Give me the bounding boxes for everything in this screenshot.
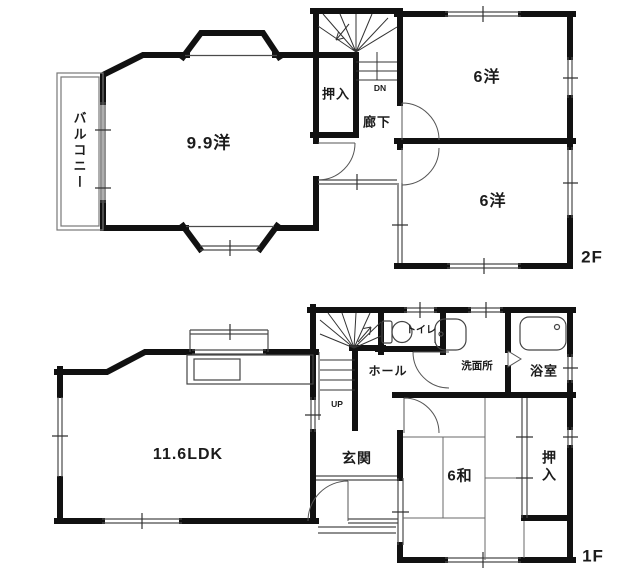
bathtub-icon — [520, 317, 566, 350]
label-washroom: 洗面所 — [461, 361, 493, 372]
label-stairs-dn: DN — [374, 84, 386, 93]
label-floor-1f: 1F — [582, 548, 604, 565]
label-entrance: 玄関 — [342, 451, 372, 465]
label-floor-2f: 2F — [581, 249, 603, 266]
floor-2f-plan — [57, 6, 578, 274]
walls-1f — [57, 307, 573, 560]
doors-1f — [308, 351, 521, 521]
bath-folding-door-icon — [508, 351, 521, 367]
label-ldk: 11.6LDK — [153, 447, 223, 463]
label-closet-1f: 押入 — [542, 450, 556, 484]
walls-2f — [103, 11, 573, 266]
label-bathroom: 浴室 — [530, 365, 558, 378]
label-western-6-upper: 6洋 — [474, 70, 501, 86]
floor-1f-plan — [52, 302, 578, 568]
label-corridor: 廊下 — [363, 116, 391, 129]
label-japanese-6: 6和 — [447, 469, 472, 484]
label-toilet: トイレ — [406, 326, 436, 336]
label-balcony: バルコニー — [73, 111, 86, 191]
floor-plan-page: バルコニー 9.9洋 押入 DN 廊下 6洋 6洋 2F 11.6LDK ホール… — [0, 0, 627, 583]
floor-plan-drawing — [0, 0, 627, 583]
label-western-6-lower: 6洋 — [480, 194, 507, 210]
label-closet-2f: 押入 — [322, 88, 350, 101]
kitchen-counter-icon — [187, 355, 313, 384]
label-stairs-up: UP — [331, 400, 343, 409]
label-hall: ホール — [368, 365, 407, 377]
label-western-9-9: 9.9洋 — [187, 135, 232, 152]
washbasin-icon — [435, 319, 466, 350]
